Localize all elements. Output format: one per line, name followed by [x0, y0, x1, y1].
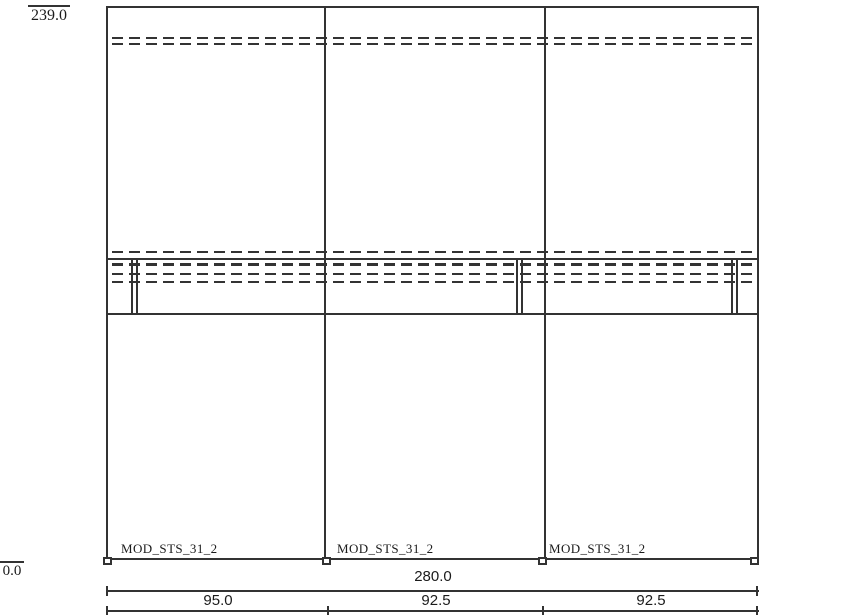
dimension-tick — [106, 606, 108, 615]
total-width-label: 280.0 — [393, 568, 473, 585]
module-width-label-2: 92.5 — [396, 592, 476, 609]
leveling-foot-4 — [750, 557, 759, 565]
dimension-tick — [756, 586, 758, 596]
module-divider-2 — [544, 8, 546, 558]
dimension-tick — [327, 606, 329, 615]
elevation-marker-top: 239.0 — [28, 5, 70, 25]
module-label-2: MOD_STS_31_2 — [337, 541, 434, 557]
rail-top-line — [108, 258, 757, 260]
cad-drawing-canvas: 239.0 0.0 MOD_STS_31_2 MOD_STS_31_2 MOD_… — [0, 0, 865, 615]
top-shelf-hidden-line-1 — [112, 37, 753, 39]
rail-hidden-line-2 — [112, 263, 753, 266]
rail-post-right — [731, 258, 738, 315]
module-width-label-1: 95.0 — [178, 592, 258, 609]
elevation-value-top: 239.0 — [31, 7, 67, 24]
leveling-foot-3 — [538, 557, 547, 565]
top-shelf-hidden-line-2 — [112, 43, 753, 45]
rail-hidden-line-3 — [112, 273, 753, 275]
elevation-value-bottom: 0.0 — [3, 563, 22, 579]
module-label-1: MOD_STS_31_2 — [121, 541, 218, 557]
module-width-label-3: 92.5 — [611, 592, 691, 609]
dimension-tick — [106, 586, 108, 596]
leveling-foot-1 — [103, 557, 112, 565]
module-divider-1 — [324, 8, 326, 558]
rail-post-middle — [516, 258, 523, 315]
elevation-marker-bottom: 0.0 — [0, 561, 24, 580]
module-width-dimension-line — [107, 610, 759, 612]
leveling-foot-2 — [322, 557, 331, 565]
rail-hidden-line-1 — [112, 251, 753, 253]
dimension-tick — [756, 606, 758, 615]
cabinet-outline: MOD_STS_31_2 MOD_STS_31_2 MOD_STS_31_2 — [106, 6, 759, 560]
rail-bottom-line — [108, 313, 757, 315]
module-label-3: MOD_STS_31_2 — [549, 541, 646, 557]
rail-hidden-line-4 — [112, 281, 753, 283]
rail-post-left — [131, 258, 138, 315]
dimension-tick — [542, 606, 544, 615]
